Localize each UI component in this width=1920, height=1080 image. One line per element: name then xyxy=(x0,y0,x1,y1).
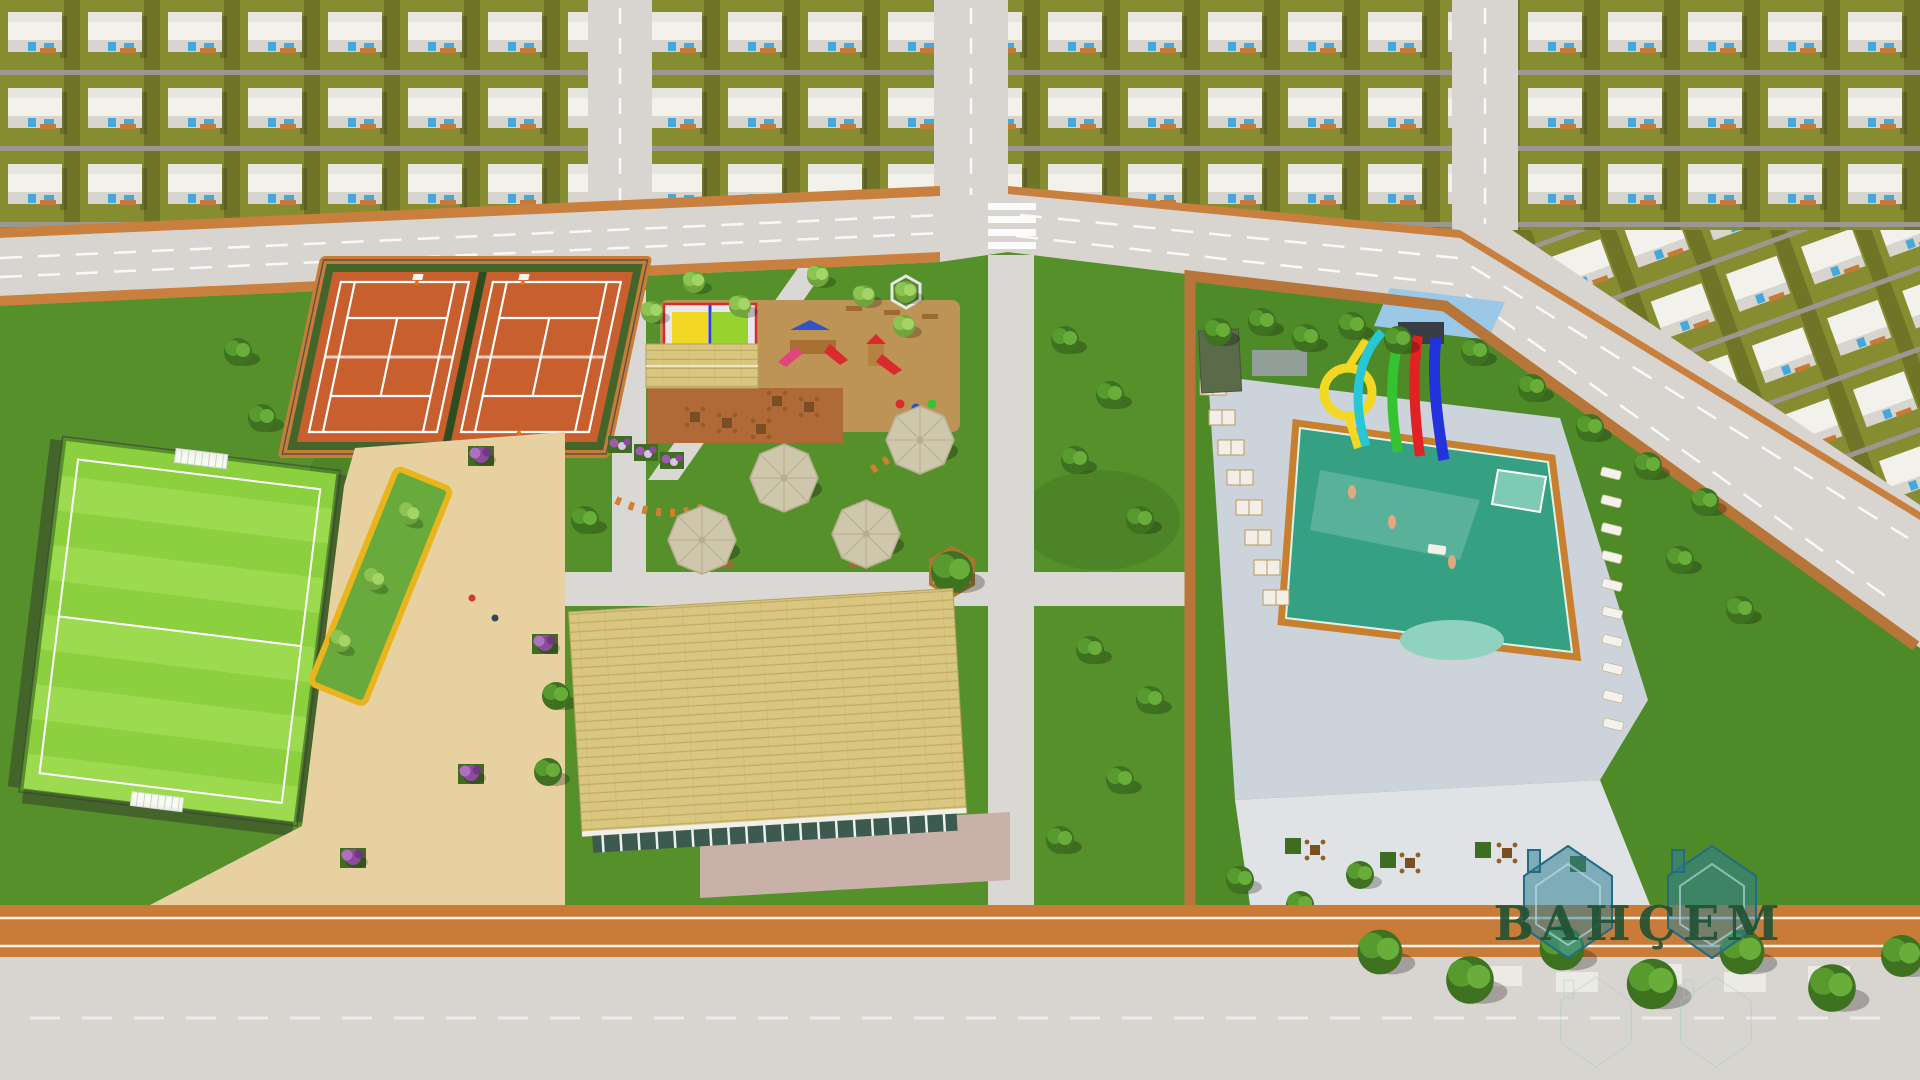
flowerbed-icon xyxy=(634,444,658,461)
flowerbed-icon xyxy=(608,436,632,453)
masterplan-render: BAHÇEM xyxy=(0,0,1920,1080)
cabana-icon xyxy=(1254,560,1280,575)
cabana-icon xyxy=(1218,440,1244,455)
watermark-text: BAHÇEM xyxy=(1493,896,1786,952)
multisport-court-complex xyxy=(277,256,652,458)
cabana-icon xyxy=(1263,590,1289,605)
slide-red xyxy=(1414,336,1420,456)
person xyxy=(469,595,476,602)
swimmer xyxy=(1448,555,1456,569)
swimmer xyxy=(1388,515,1396,529)
kids-pool xyxy=(1492,470,1546,512)
cabana-icon xyxy=(1245,530,1271,545)
flowerbed-icon xyxy=(660,452,684,469)
house-front xyxy=(1556,972,1598,992)
person xyxy=(492,615,499,622)
building-shingle-roof xyxy=(569,588,967,836)
beach-entry xyxy=(1400,620,1504,660)
cafe-terrace xyxy=(648,388,843,443)
swimmer xyxy=(1348,485,1356,499)
house-front xyxy=(1724,972,1766,992)
cabana-icon xyxy=(1209,410,1235,425)
cabana-icon xyxy=(1227,470,1253,485)
cabana-icon xyxy=(1236,500,1262,515)
pergola xyxy=(1252,350,1307,376)
